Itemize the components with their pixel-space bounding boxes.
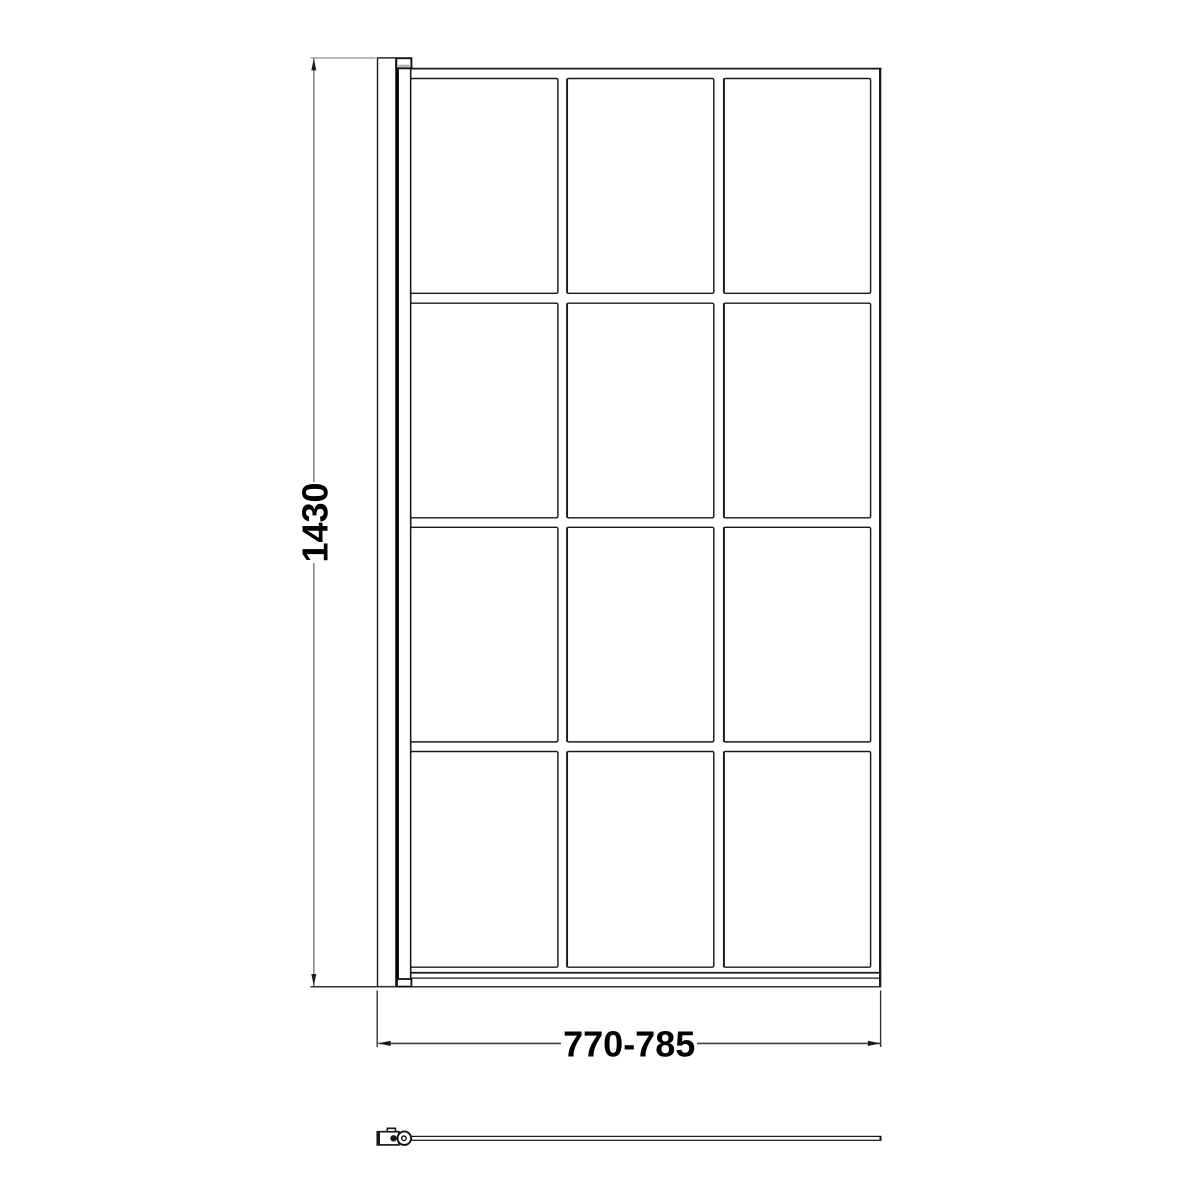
svg-text:770-785: 770-785 (563, 1024, 695, 1065)
svg-text:1430: 1430 (295, 482, 336, 562)
